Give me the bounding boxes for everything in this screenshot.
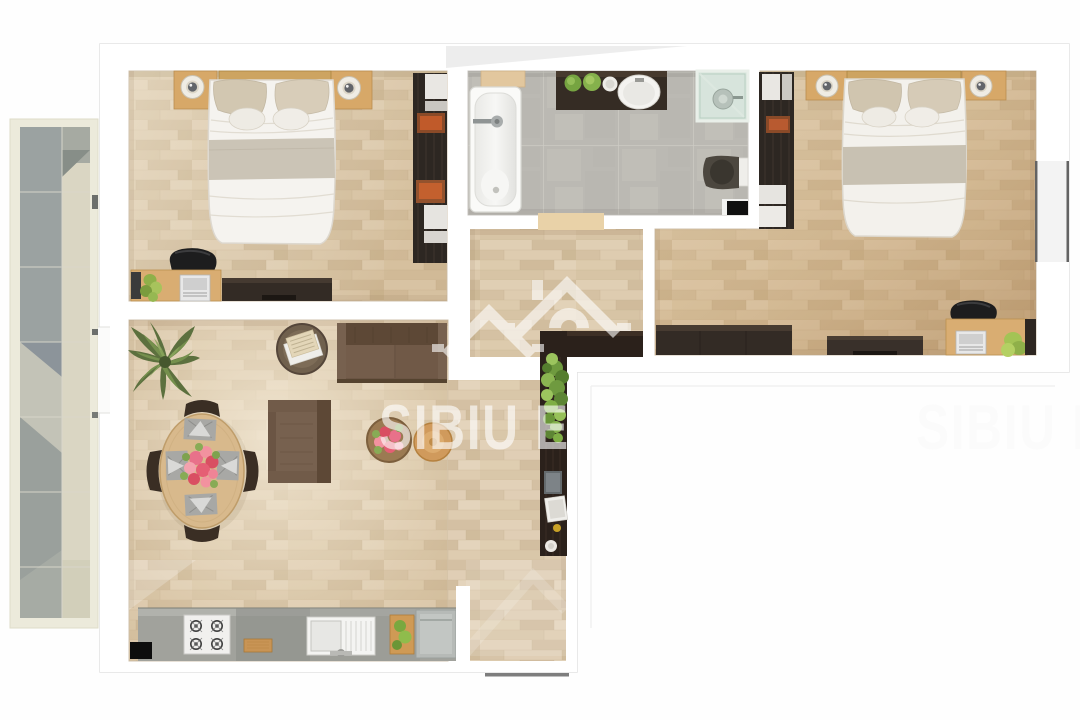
svg-text:SIBIU E: SIBIU E: [379, 394, 570, 464]
svg-text:SIBIU E: SIBIU E: [916, 394, 1080, 464]
